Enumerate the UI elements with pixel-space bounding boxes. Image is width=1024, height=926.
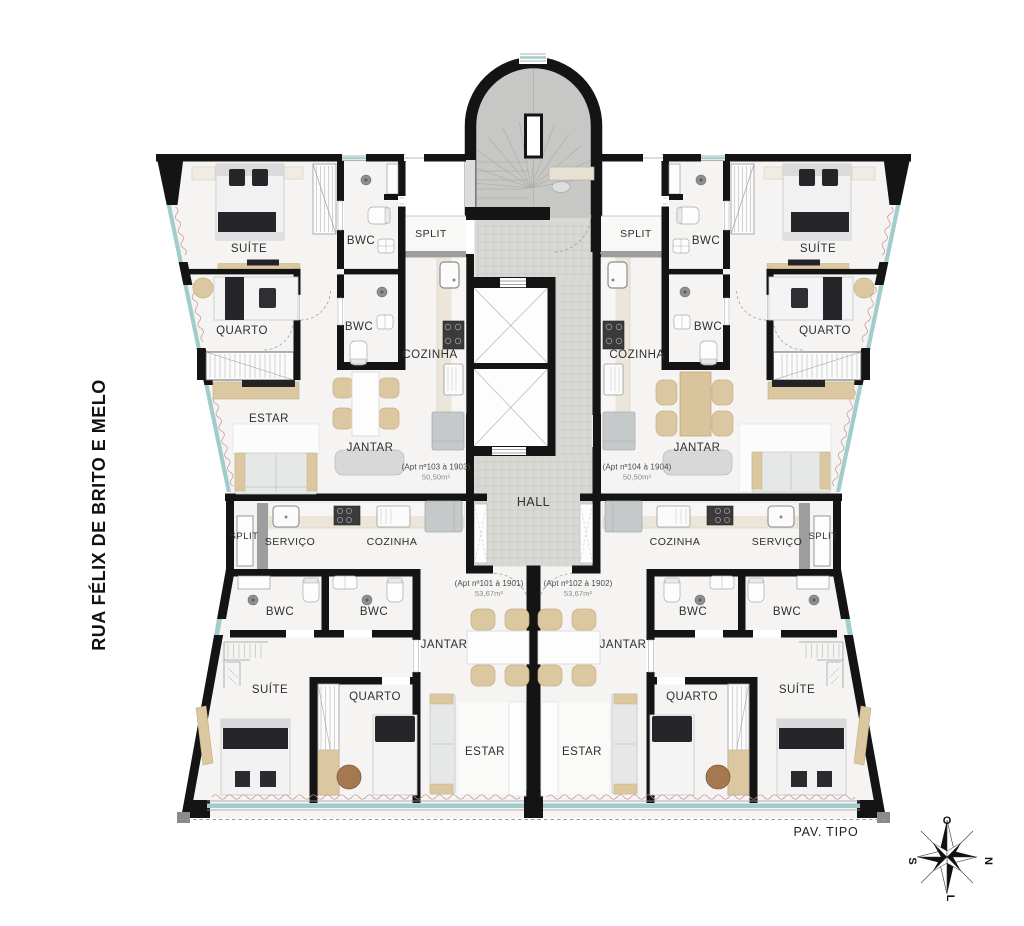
svg-text:COZINHA: COZINHA	[367, 536, 418, 548]
svg-text:BWC: BWC	[347, 235, 375, 247]
svg-text:BWC: BWC	[345, 321, 373, 333]
svg-text:SUÍTE: SUÍTE	[800, 242, 836, 255]
svg-text:RUA FÉLIX DE BRITO E MELO: RUA FÉLIX DE BRITO E MELO	[88, 379, 109, 651]
svg-text:JANTAR: JANTAR	[347, 442, 394, 454]
svg-text:53,67m²: 53,67m²	[564, 589, 593, 598]
svg-text:50,50m²: 50,50m²	[623, 473, 652, 482]
svg-text:BWC: BWC	[694, 321, 722, 333]
svg-text:JANTAR: JANTAR	[600, 639, 647, 651]
svg-text:SPLIT: SPLIT	[809, 531, 838, 542]
svg-text:SPLIT: SPLIT	[620, 228, 652, 240]
svg-text:SUÍTE: SUÍTE	[252, 683, 288, 696]
svg-text:BWC: BWC	[360, 606, 388, 618]
svg-text:ESTAR: ESTAR	[562, 746, 602, 758]
svg-text:SERVIÇO: SERVIÇO	[265, 536, 316, 548]
svg-text:HALL: HALL	[517, 495, 550, 509]
svg-text:O: O	[943, 815, 952, 827]
svg-text:S: S	[906, 857, 918, 864]
svg-text:L: L	[944, 895, 956, 902]
svg-text:PAV. TIPO: PAV. TIPO	[793, 825, 858, 839]
svg-text:QUARTO: QUARTO	[216, 325, 268, 337]
svg-text:SERVIÇO: SERVIÇO	[752, 536, 803, 548]
svg-text:(Apt nº102 à 1902): (Apt nº102 à 1902)	[544, 579, 613, 588]
svg-text:N: N	[982, 857, 994, 865]
svg-text:BWC: BWC	[679, 606, 707, 618]
svg-text:QUARTO: QUARTO	[349, 691, 401, 703]
svg-text:JANTAR: JANTAR	[421, 639, 468, 651]
svg-text:(Apt nº101 à 1901): (Apt nº101 à 1901)	[455, 579, 524, 588]
svg-text:COZINHA: COZINHA	[402, 349, 457, 361]
svg-text:JANTAR: JANTAR	[674, 442, 721, 454]
svg-text:COZINHA: COZINHA	[609, 349, 664, 361]
svg-text:(Apt nº104 à 1904): (Apt nº104 à 1904)	[603, 463, 672, 472]
svg-text:QUARTO: QUARTO	[666, 691, 718, 703]
svg-text:BWC: BWC	[266, 606, 294, 618]
svg-text:ESTAR: ESTAR	[249, 413, 289, 425]
svg-text:QUARTO: QUARTO	[799, 325, 851, 337]
svg-text:COZINHA: COZINHA	[650, 536, 701, 548]
svg-text:50,50m²: 50,50m²	[422, 473, 451, 482]
svg-text:(Apt nº103 à 1903): (Apt nº103 à 1903)	[402, 463, 471, 472]
svg-text:BWC: BWC	[773, 606, 801, 618]
svg-text:BWC: BWC	[692, 235, 720, 247]
svg-text:SUÍTE: SUÍTE	[231, 242, 267, 255]
svg-text:SPLIT: SPLIT	[415, 228, 447, 240]
svg-text:ESTAR: ESTAR	[465, 746, 505, 758]
svg-text:53,67m²: 53,67m²	[475, 589, 504, 598]
svg-text:SPLIT: SPLIT	[230, 531, 259, 542]
svg-text:SUÍTE: SUÍTE	[779, 683, 815, 696]
